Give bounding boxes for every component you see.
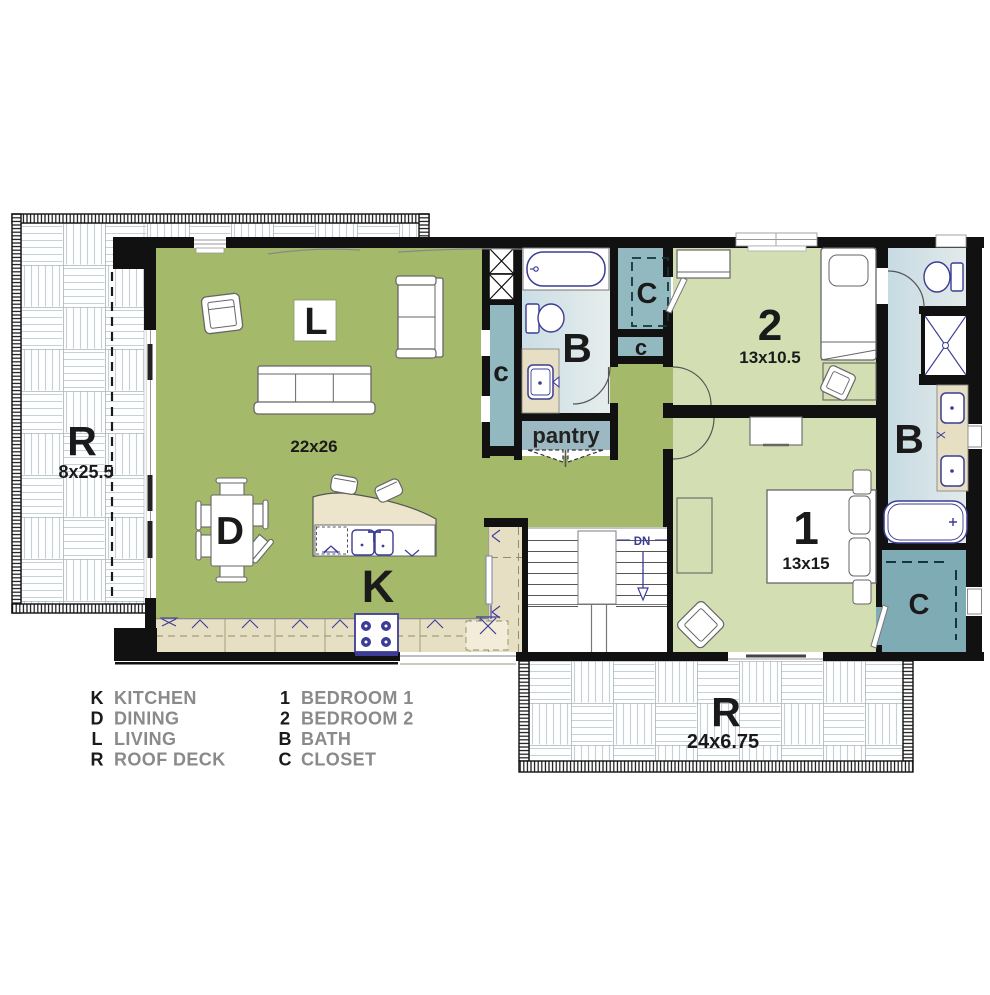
svg-text:BEDROOM 1: BEDROOM 1 <box>301 688 414 708</box>
svg-text:pantry: pantry <box>532 423 600 448</box>
svg-text:R: R <box>91 750 104 770</box>
svg-text:1: 1 <box>793 502 819 554</box>
svg-text:2: 2 <box>758 301 782 350</box>
svg-text:LIVING: LIVING <box>114 729 176 749</box>
svg-text:c: c <box>635 335 647 360</box>
svg-text:B: B <box>894 416 924 462</box>
svg-text:C: C <box>637 278 658 310</box>
svg-text:B: B <box>279 729 292 749</box>
svg-text:24x6.75: 24x6.75 <box>687 731 759 753</box>
svg-text:1: 1 <box>280 688 290 708</box>
svg-text:B: B <box>562 325 592 371</box>
svg-text:R: R <box>67 418 97 464</box>
svg-text:KITCHEN: KITCHEN <box>114 688 197 708</box>
svg-text:D: D <box>91 709 104 729</box>
svg-text:2: 2 <box>280 709 290 729</box>
svg-text:L: L <box>92 729 103 749</box>
svg-text:DINING: DINING <box>114 709 179 729</box>
svg-text:L: L <box>304 301 327 343</box>
svg-text:DN: DN <box>634 536 651 548</box>
svg-text:C: C <box>279 750 292 770</box>
svg-text:K: K <box>91 688 104 708</box>
svg-text:D: D <box>216 510 244 553</box>
svg-text:BEDROOM 2: BEDROOM 2 <box>301 709 414 729</box>
svg-text:R: R <box>711 689 741 735</box>
svg-text:c: c <box>493 356 509 387</box>
svg-text:22x26: 22x26 <box>290 437 337 456</box>
svg-text:CLOSET: CLOSET <box>301 750 376 770</box>
svg-text:13x10.5: 13x10.5 <box>739 348 800 367</box>
svg-text:K: K <box>362 561 395 612</box>
svg-text:C: C <box>909 589 930 621</box>
svg-text:BATH: BATH <box>301 729 351 749</box>
svg-text:13x15: 13x15 <box>782 554 829 573</box>
svg-text:8x25.5: 8x25.5 <box>58 462 113 482</box>
svg-text:ROOF DECK: ROOF DECK <box>114 750 226 770</box>
